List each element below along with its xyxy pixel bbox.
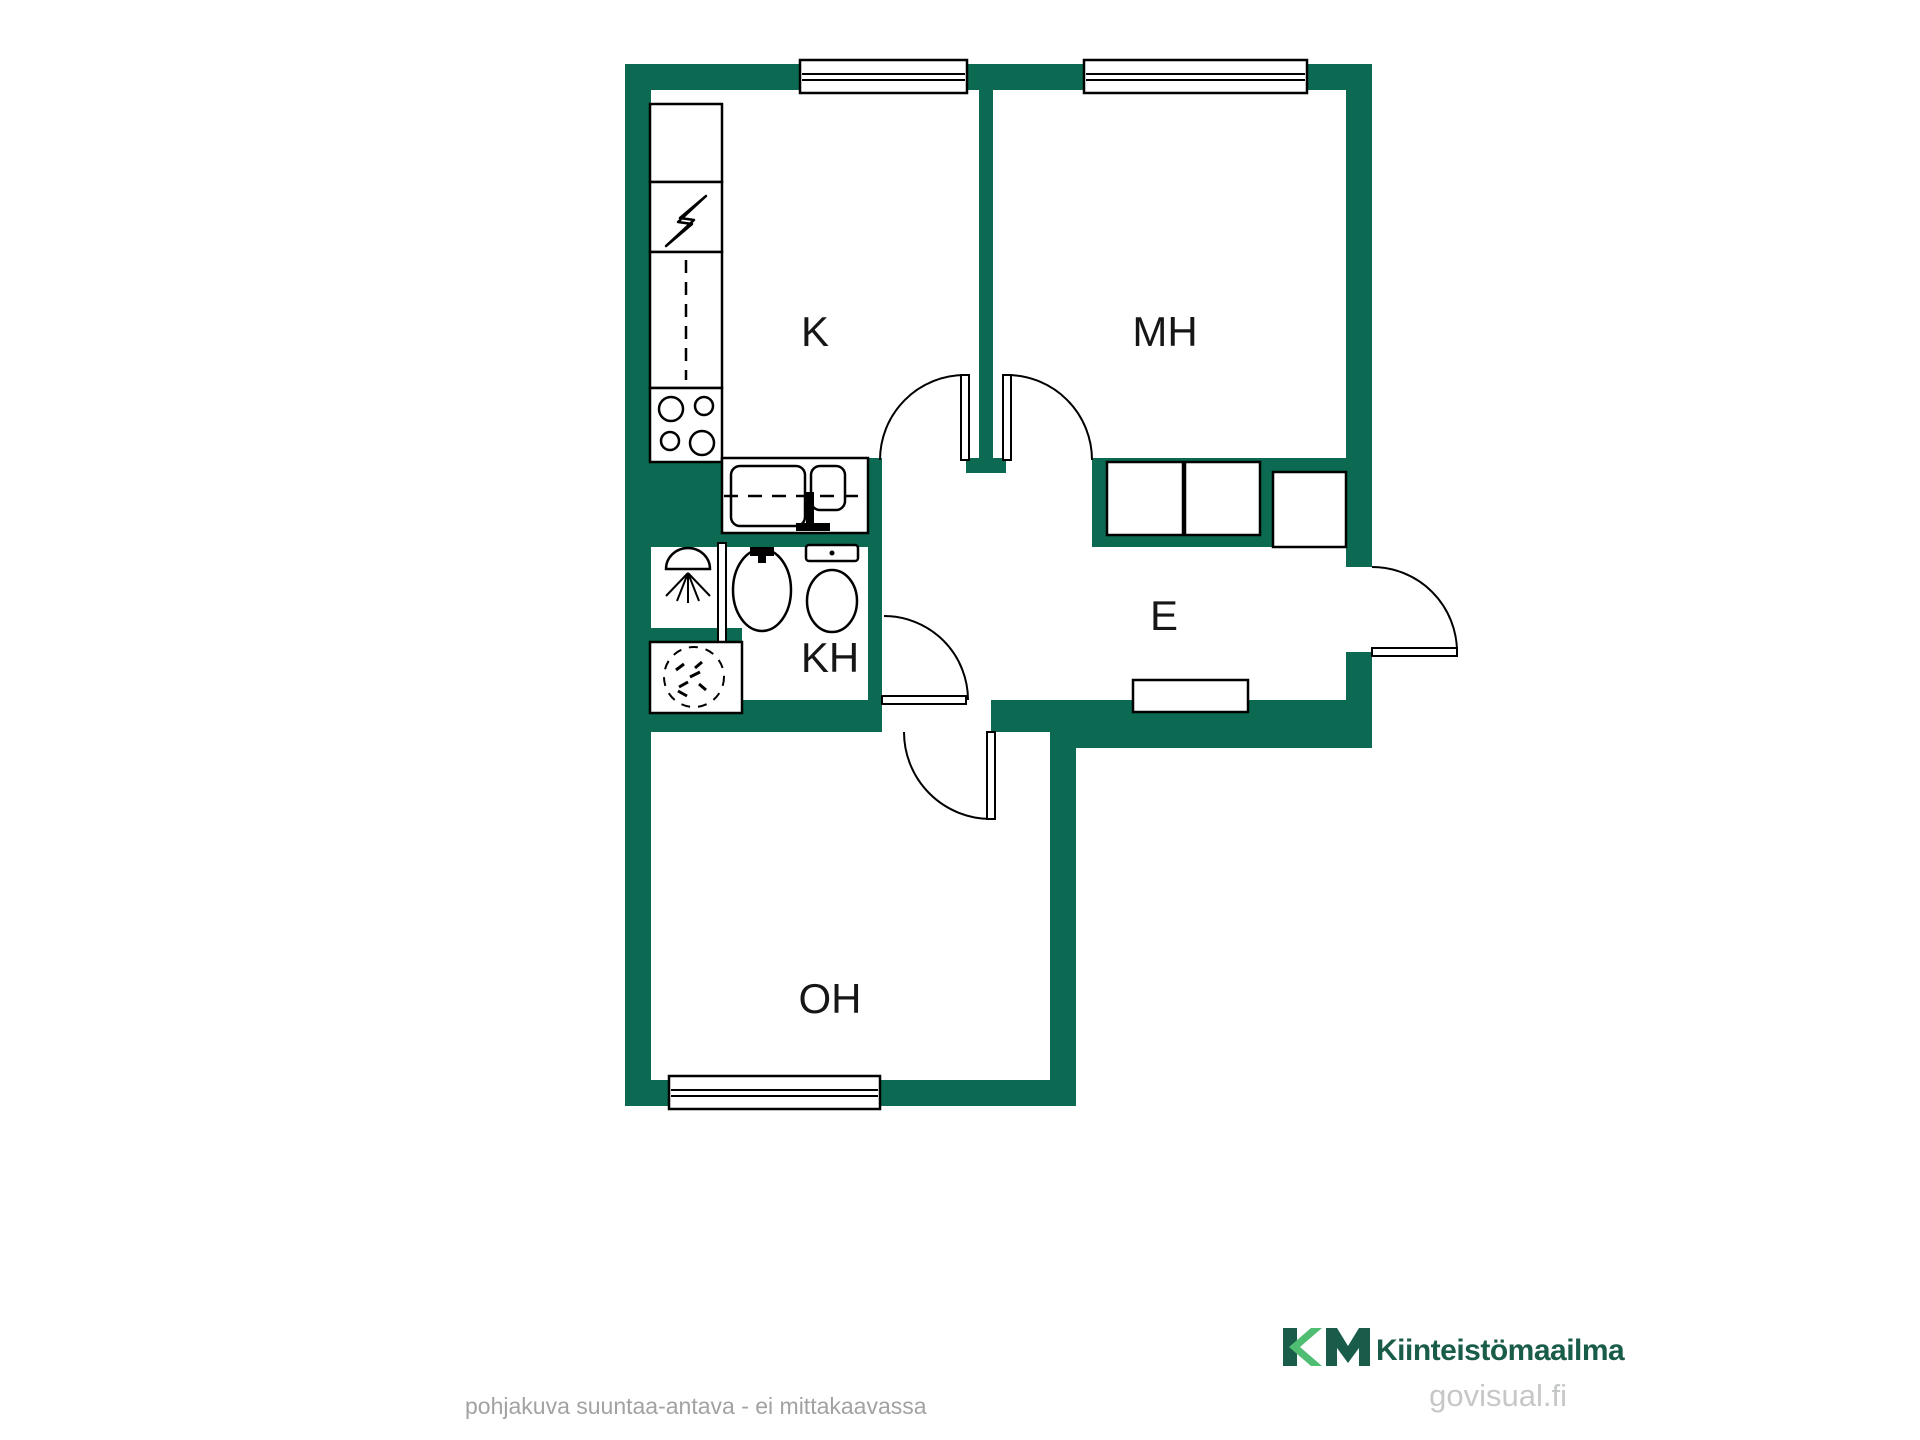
door-bedroom — [1003, 375, 1092, 460]
label-bathroom: KH — [801, 634, 859, 681]
shoe-cabinet — [1133, 680, 1248, 712]
km-logo: Kiinteistömaailma govisual.fi — [1283, 1328, 1625, 1413]
sink-basin-large — [731, 466, 805, 526]
label-bedroom: MH — [1132, 308, 1197, 355]
window-kitchen — [800, 60, 967, 93]
electric-panel — [650, 182, 722, 252]
sink-basin-small — [811, 466, 845, 510]
kitchen-sink-counter — [722, 458, 868, 533]
wall-left — [625, 64, 651, 1106]
fridge — [650, 104, 722, 182]
wall-pier-hall — [991, 700, 1050, 732]
label-kitchen: K — [801, 308, 829, 355]
wall-under-stove — [650, 462, 722, 533]
shower-icon — [666, 548, 710, 603]
room-labels: K MH E KH OH — [799, 308, 1198, 1022]
wall-right-upper — [1346, 64, 1372, 567]
counter-cabinet — [650, 252, 722, 388]
toilet — [806, 545, 858, 632]
disclaimer-text: pohjakuva suuntaa-antava - ei mittakaava… — [465, 1393, 927, 1419]
door-entry — [1372, 567, 1457, 656]
door-living — [904, 732, 995, 819]
label-living-room: OH — [799, 975, 862, 1022]
wall-partition-k-mh — [979, 90, 993, 460]
door-bathroom — [882, 616, 968, 704]
wardrobes — [1107, 462, 1346, 547]
floor-plan-drawing: K MH E KH OH Kiinteistömaailma govisual.… — [0, 0, 1920, 1440]
closet — [1273, 472, 1346, 547]
km-logo-icon — [1283, 1328, 1370, 1366]
wall-living-east — [1050, 700, 1076, 1106]
wardrobe-2 — [1185, 462, 1260, 535]
stove — [650, 388, 722, 462]
watermark-text: govisual.fi — [1429, 1378, 1567, 1413]
wardrobe-1 — [1107, 462, 1183, 535]
wall-washer-top — [650, 628, 742, 642]
window-living — [669, 1076, 880, 1109]
logo-company-name: Kiinteistömaailma — [1376, 1334, 1625, 1367]
window-bedroom — [1084, 60, 1307, 93]
floor-plan-page: K MH E KH OH Kiinteistömaailma govisual.… — [0, 0, 1920, 1440]
door-kitchen — [880, 375, 969, 460]
label-hallway: E — [1150, 592, 1178, 639]
wall-stub-between-doors — [966, 458, 1006, 473]
washbasin — [733, 547, 791, 631]
washing-machine — [650, 642, 742, 713]
wall-bathroom-east — [868, 458, 882, 702]
